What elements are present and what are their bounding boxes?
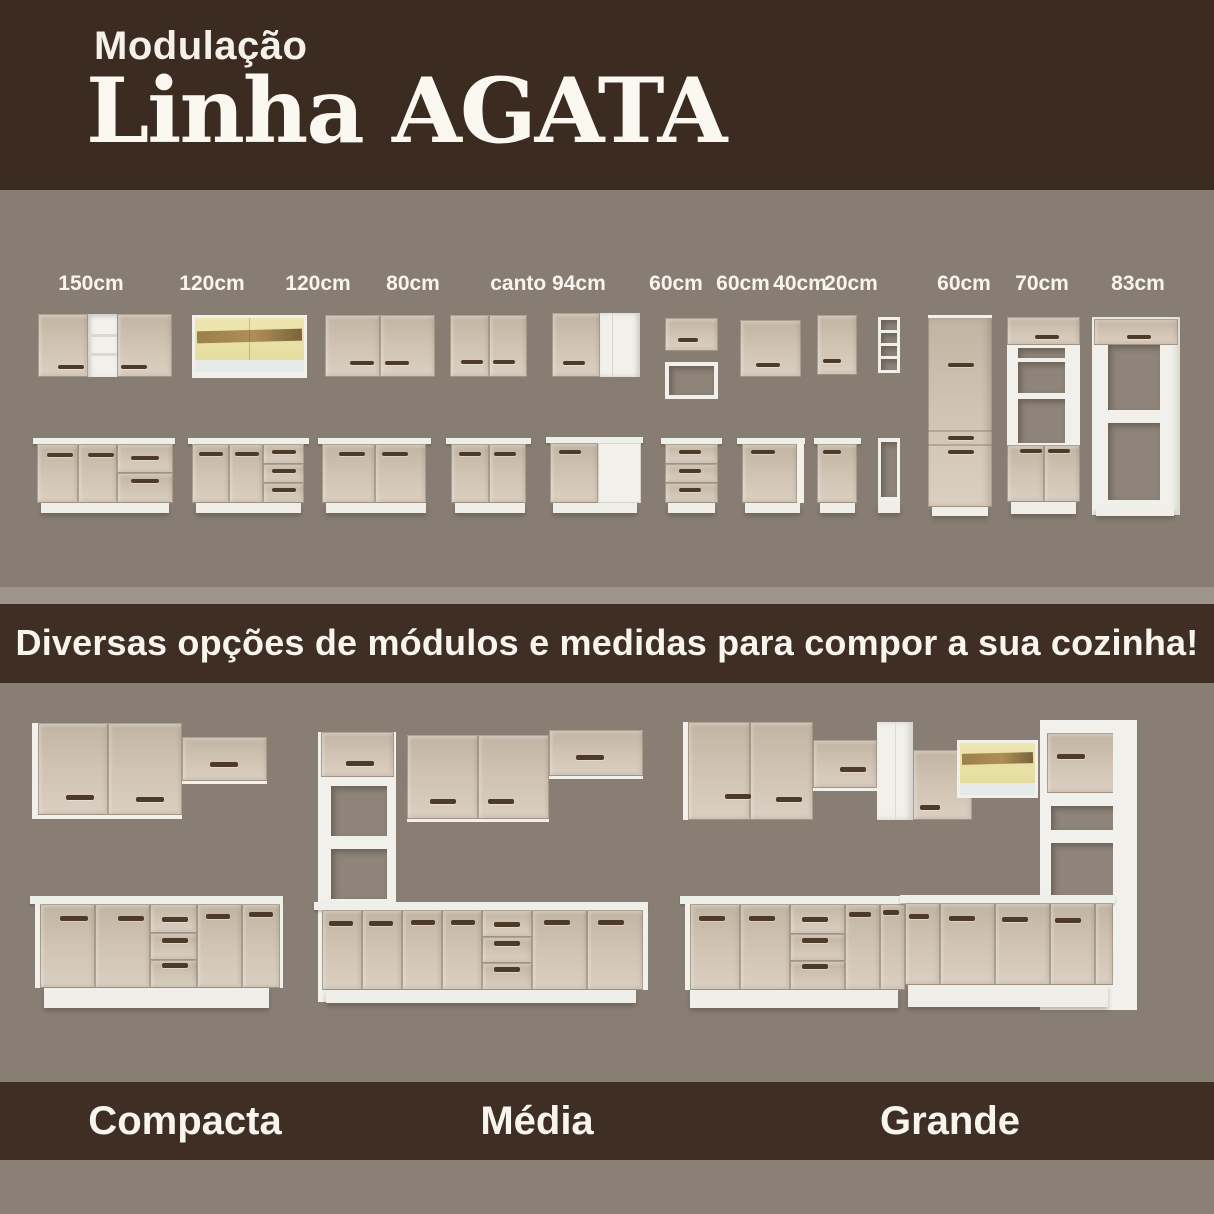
door-handle — [576, 755, 604, 760]
open-shelf — [88, 314, 117, 377]
module-size-label: 70cm — [1015, 272, 1069, 296]
door-handle — [235, 452, 259, 456]
side-panel — [643, 910, 648, 990]
door-handle — [451, 920, 475, 925]
plinth — [820, 503, 855, 513]
flap-cabinet-door — [1094, 319, 1178, 345]
open-niche — [1018, 399, 1065, 443]
door-handle — [1055, 918, 1081, 923]
door-handle — [563, 361, 585, 365]
drawer-handle — [272, 488, 296, 492]
cabinet-door — [489, 315, 527, 377]
bottom-edge — [813, 788, 877, 791]
bottom-edge — [407, 819, 549, 822]
door-handle — [206, 914, 230, 919]
door-handle — [1035, 335, 1059, 339]
open-niche — [331, 849, 387, 899]
flap-cabinet-door — [182, 737, 267, 781]
drawer-front — [263, 483, 304, 503]
side-panel — [280, 904, 283, 988]
panel-seam — [895, 722, 896, 820]
kitchen-name-grande: Grande — [880, 1099, 1020, 1144]
door-handle — [559, 450, 581, 454]
drawer-handle — [679, 450, 701, 454]
door-handle — [339, 452, 365, 456]
door-handle — [823, 359, 841, 363]
door-handle — [678, 338, 698, 342]
drawer-handle — [679, 488, 701, 492]
open-niche — [1108, 423, 1160, 500]
door-divider — [249, 318, 250, 360]
door-handle — [920, 805, 940, 810]
banner-text: Diversas opções de módulos e medidas par… — [0, 622, 1214, 664]
module-size-label: 120cm — [179, 272, 244, 296]
flap-cabinet-door — [665, 318, 718, 351]
door-divider — [928, 444, 992, 446]
door-handle — [66, 795, 94, 800]
door-handle — [776, 797, 802, 802]
drawer-handle — [162, 963, 188, 968]
door-handle — [121, 365, 147, 369]
plinth — [908, 985, 1108, 1007]
glass-lower-band — [195, 360, 304, 372]
drawer-handle — [162, 938, 188, 943]
module-size-label: 83cm — [1111, 272, 1165, 296]
page-title: Linha AGATA — [86, 64, 725, 159]
door-handle — [823, 450, 841, 454]
drawer-handle — [272, 469, 296, 473]
plinth — [932, 507, 988, 516]
tall-cabinet-body — [928, 317, 992, 507]
door-handle — [60, 916, 88, 921]
open-niche — [881, 346, 897, 356]
door-handle — [948, 363, 974, 367]
cabinet-door — [325, 315, 380, 377]
countertop — [680, 896, 908, 904]
door-handle — [47, 453, 73, 457]
door-handle — [329, 921, 353, 926]
cabinet-door — [450, 315, 489, 377]
door-handle — [1048, 449, 1070, 453]
drawer-handle — [272, 450, 296, 454]
cabinet-door — [1044, 445, 1080, 502]
drawer-handle — [802, 964, 828, 969]
panel-seam — [612, 313, 613, 377]
drawer-front — [263, 444, 304, 464]
shelf — [88, 334, 117, 337]
plinth — [745, 503, 800, 513]
door-handle — [385, 361, 409, 365]
bottom-edge — [549, 776, 643, 779]
door-handle — [751, 450, 775, 454]
door-handle — [1002, 917, 1028, 922]
door-handle — [118, 916, 144, 921]
top-edge — [928, 315, 992, 318]
cabinet-door — [407, 735, 478, 819]
corner-open-door — [598, 443, 641, 503]
open-niche — [881, 359, 897, 370]
plinth — [455, 503, 525, 513]
flap-cabinet-door — [1007, 317, 1080, 345]
door-divider — [928, 430, 992, 432]
bottom-edge — [32, 815, 182, 819]
plinth — [326, 503, 426, 513]
module-size-label: 80cm — [386, 272, 440, 296]
open-niche — [881, 320, 897, 330]
module-size-label: 60cm — [716, 272, 770, 296]
flap-cabinet-door — [813, 740, 877, 788]
door-handle — [459, 452, 481, 456]
door-handle — [1057, 754, 1085, 759]
divider-strip — [0, 587, 1214, 604]
cabinet-door — [740, 320, 801, 377]
cabinet-door — [38, 723, 108, 815]
drawer-front — [665, 464, 718, 483]
cabinet-door — [380, 315, 435, 377]
door-handle — [948, 450, 974, 454]
plinth — [1011, 502, 1076, 514]
door-handle — [430, 799, 456, 804]
door-handle — [849, 912, 871, 917]
door-handle — [883, 910, 899, 915]
module-size-label: canto 94cm — [490, 272, 606, 296]
open-niche — [1108, 345, 1160, 410]
door-handle — [210, 762, 238, 767]
module-size-label: 40cm — [773, 272, 827, 296]
door-handle — [136, 797, 164, 802]
door-handle — [493, 360, 515, 364]
countertop — [30, 896, 283, 904]
plinth — [553, 503, 637, 513]
side-panel — [1113, 720, 1137, 1010]
plinth — [196, 503, 301, 513]
cabinet-door — [1095, 903, 1113, 985]
open-niche — [331, 786, 387, 836]
corner-side-panel — [600, 313, 640, 377]
side-panel — [797, 444, 804, 503]
cabinet-door — [995, 903, 1050, 985]
corner-cabinet-door — [552, 313, 600, 377]
door-handle — [58, 365, 84, 369]
door-handle — [488, 799, 514, 804]
cabinet-door — [817, 315, 857, 375]
drawer-handle — [679, 469, 701, 473]
door-handle — [382, 452, 408, 456]
open-niche — [881, 442, 897, 497]
door-handle — [1020, 449, 1042, 453]
door-handle — [949, 916, 975, 921]
open-niche — [1018, 362, 1065, 393]
door-handle — [249, 912, 273, 917]
door-handle — [948, 436, 974, 440]
door-handle — [88, 453, 114, 457]
door-handle — [461, 360, 483, 364]
plinth — [1096, 507, 1174, 516]
catalog-page: Modulação Linha AGATA 150cm 120cm 120cm … — [0, 0, 1214, 1214]
cabinet-door — [750, 722, 813, 820]
door-handle — [494, 452, 516, 456]
cabinet-door — [478, 735, 549, 819]
flap-cabinet-door — [549, 730, 643, 776]
module-size-label: 150cm — [58, 272, 123, 296]
module-size-label: 60cm — [937, 272, 991, 296]
cabinet-door — [880, 904, 905, 990]
door-handle — [369, 921, 393, 926]
cabinet-door — [1050, 903, 1095, 985]
door-handle — [756, 363, 780, 367]
drawer-handle — [131, 479, 159, 483]
drawer-handle — [162, 917, 188, 922]
door-handle — [909, 914, 929, 919]
door-handle — [840, 767, 866, 772]
door-handle — [346, 761, 374, 766]
drawer-handle — [494, 941, 520, 946]
cabinet-door — [688, 722, 750, 820]
plinth — [41, 503, 169, 513]
plinth — [44, 988, 269, 1008]
wood-shelf-behind-glass — [962, 752, 1033, 765]
kitchen-name-media: Média — [480, 1099, 593, 1144]
door-handle — [598, 920, 624, 925]
plinth — [326, 990, 636, 1003]
kitchen-name-compacta: Compacta — [88, 1099, 281, 1144]
module-size-label: 60cm — [649, 272, 703, 296]
module-size-label: 20cm — [824, 272, 878, 296]
door-handle — [199, 452, 223, 456]
door-handle — [1127, 335, 1151, 339]
module-size-label: 120cm — [285, 272, 350, 296]
countertop — [314, 902, 648, 910]
door-handle — [699, 916, 725, 921]
open-niche — [1018, 348, 1065, 358]
drawer-handle — [494, 922, 520, 927]
door-handle — [411, 920, 435, 925]
door-handle — [544, 920, 570, 925]
open-niche — [881, 333, 897, 343]
countertop — [900, 895, 1115, 903]
door-handle — [350, 361, 374, 365]
glass-lower-band — [960, 783, 1035, 795]
plinth — [690, 990, 898, 1008]
flap-cabinet-door — [321, 732, 394, 777]
drawer-front — [263, 464, 304, 483]
shelf — [88, 353, 117, 356]
drawer-front — [665, 483, 718, 503]
drawer-front — [117, 473, 173, 503]
drawer-front — [665, 444, 718, 464]
door-handle — [749, 916, 775, 921]
bottom-edge — [182, 781, 267, 784]
plinth — [668, 503, 715, 513]
door-handle — [725, 794, 751, 799]
plinth — [878, 503, 900, 513]
drawer-handle — [802, 917, 828, 922]
open-niche — [669, 366, 714, 395]
cabinet-door — [1007, 445, 1044, 502]
bottom-strip — [0, 1160, 1214, 1214]
drawer-handle — [131, 456, 159, 460]
drawer-handle — [802, 938, 828, 943]
drawer-handle — [494, 967, 520, 972]
